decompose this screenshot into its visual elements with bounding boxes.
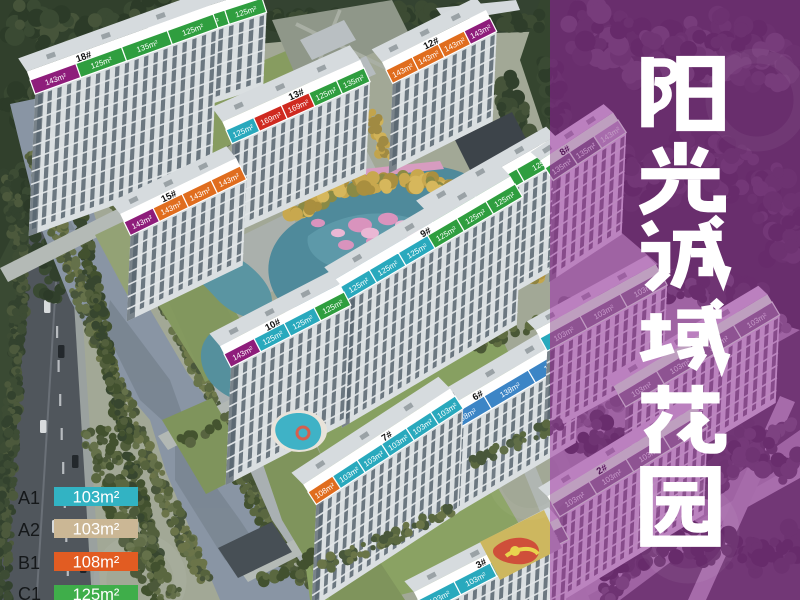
svg-text:A1: A1 <box>18 488 40 508</box>
svg-text:125m²: 125m² <box>73 586 120 600</box>
svg-text:B1: B1 <box>18 553 40 573</box>
svg-text:108m²: 108m² <box>73 554 120 572</box>
svg-text:A2: A2 <box>18 520 40 540</box>
svg-text:103m²: 103m² <box>73 489 120 507</box>
svg-text:103m²: 103m² <box>73 521 120 539</box>
svg-text:C1: C1 <box>18 584 41 600</box>
